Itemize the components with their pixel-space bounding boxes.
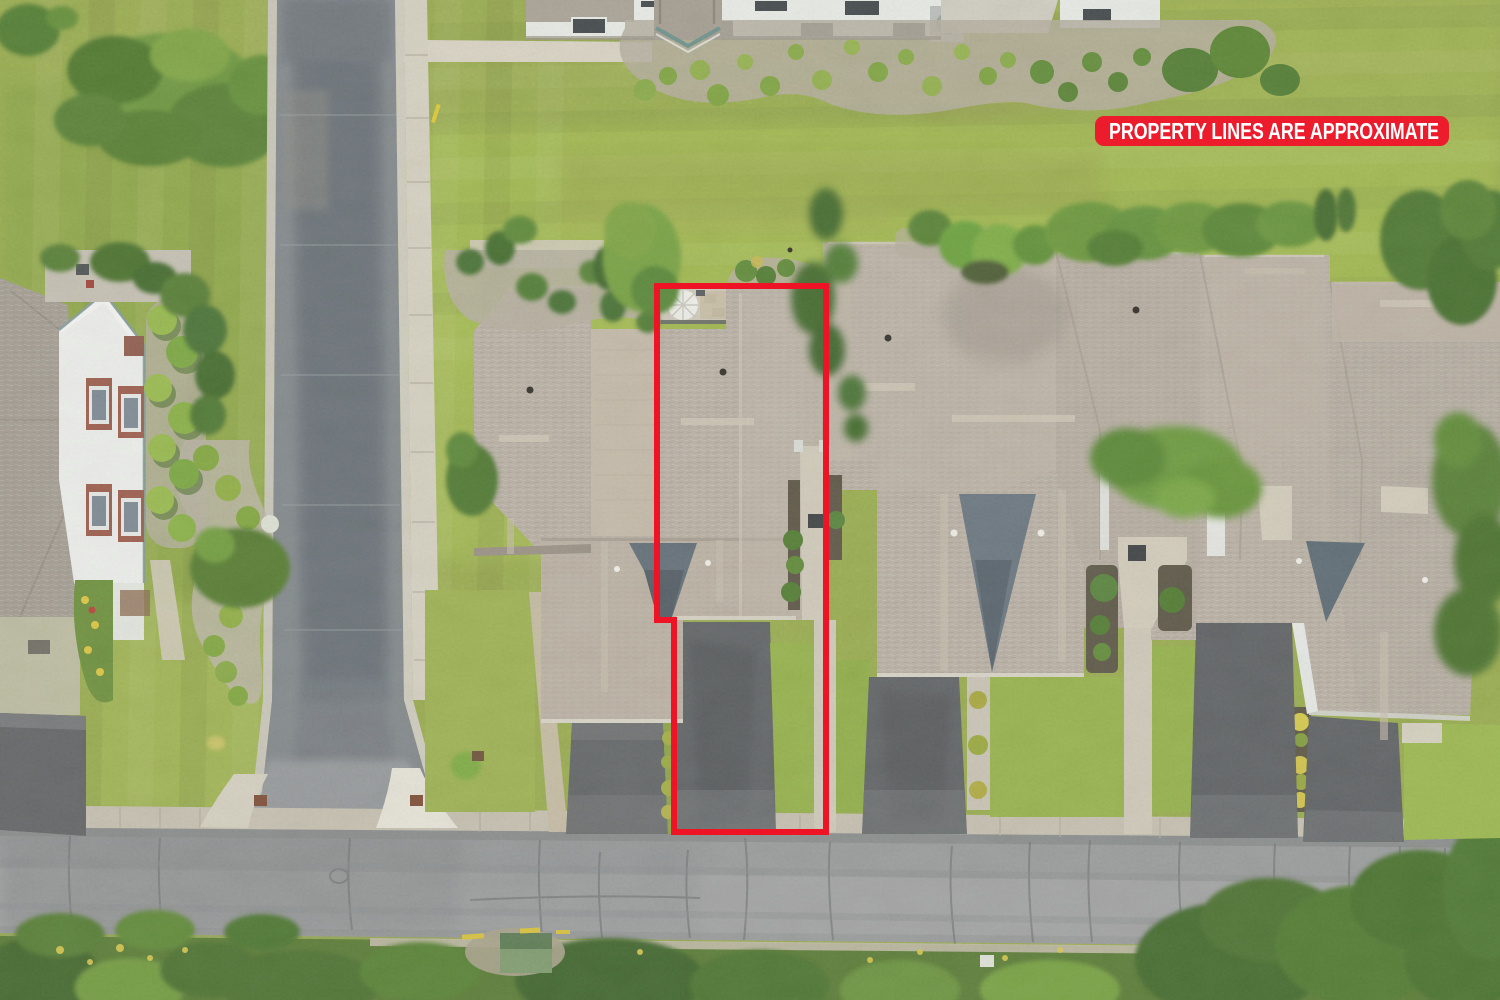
svg-text:PROPERTY LINES ARE APPROXIMATE: PROPERTY LINES ARE APPROXIMATE xyxy=(1109,118,1439,144)
